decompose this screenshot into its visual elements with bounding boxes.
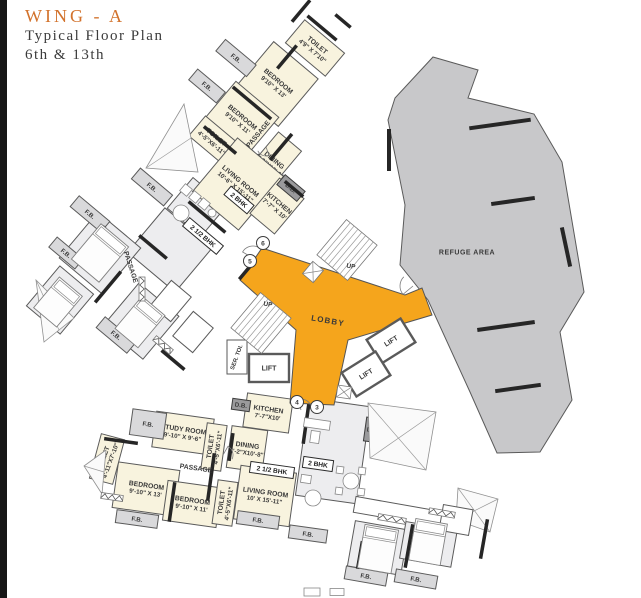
room-f-b: F.B. bbox=[131, 168, 172, 206]
flat-number-4: 4 bbox=[291, 396, 304, 409]
furniture-rect bbox=[336, 466, 344, 474]
wardrobe bbox=[139, 277, 145, 301]
bed bbox=[357, 524, 398, 573]
room-d-b: D.B. bbox=[231, 398, 250, 411]
svg-text:5: 5 bbox=[248, 258, 252, 265]
room-label: LIFT bbox=[262, 365, 277, 372]
furniture-circle bbox=[343, 473, 359, 489]
page-title: WING - A bbox=[25, 6, 163, 27]
hatch-area bbox=[146, 104, 198, 172]
furniture-rect bbox=[358, 467, 366, 475]
wall-segment bbox=[291, 0, 312, 23]
room-unit bbox=[173, 311, 213, 352]
flat-number-3: 3 bbox=[311, 401, 324, 414]
room-f-b: F.B. bbox=[394, 569, 438, 589]
room-f-b: F.B. bbox=[189, 69, 226, 103]
furniture-rect bbox=[357, 488, 365, 496]
furniture-rect bbox=[310, 430, 321, 443]
svg-text:3: 3 bbox=[315, 404, 319, 411]
room-lift: LIFT bbox=[249, 354, 289, 382]
hatch-area bbox=[368, 403, 436, 470]
floor-plan-page: WING - A Typical Floor Plan 6th & 13th T… bbox=[0, 0, 641, 598]
furniture-circle bbox=[208, 209, 216, 217]
furniture-rect bbox=[330, 589, 344, 596]
label-refuge-area: REFUGE AREA bbox=[439, 249, 495, 256]
room-f-b: F.B. bbox=[288, 525, 327, 543]
svg-text:6: 6 bbox=[261, 240, 265, 247]
svg-text:4: 4 bbox=[295, 399, 299, 406]
furniture-circle bbox=[305, 490, 321, 506]
wall-segment bbox=[334, 13, 352, 29]
flat-number-5: 5 bbox=[244, 255, 257, 268]
svg-text:REFUGE AREA: REFUGE AREA bbox=[439, 249, 495, 256]
duct-shaft bbox=[336, 385, 352, 399]
subtitle-line2: 6th & 13th bbox=[25, 46, 163, 65]
room-f-b: F.B. bbox=[129, 409, 166, 439]
wall-segment bbox=[160, 349, 185, 371]
furniture-rect bbox=[300, 474, 311, 483]
floor-plan-drawing: TOILET4'9" X 7'10"BEDROOM9'10" X 13'BEDR… bbox=[0, 0, 641, 598]
title-block: WING - A Typical Floor Plan 6th & 13th bbox=[25, 6, 163, 65]
bed bbox=[409, 519, 448, 566]
furniture-rect bbox=[335, 487, 343, 495]
subtitle-line1: Typical Floor Plan bbox=[25, 27, 163, 46]
room-floor bbox=[173, 311, 213, 352]
room-kitchen: KITCHEN7'-7"X10' bbox=[243, 393, 293, 433]
room-f-b: F.B. bbox=[216, 39, 256, 76]
wall-segment bbox=[387, 129, 391, 171]
furniture-rect bbox=[304, 588, 320, 596]
flat-number-6: 6 bbox=[257, 237, 270, 250]
furniture-circle bbox=[173, 205, 189, 221]
